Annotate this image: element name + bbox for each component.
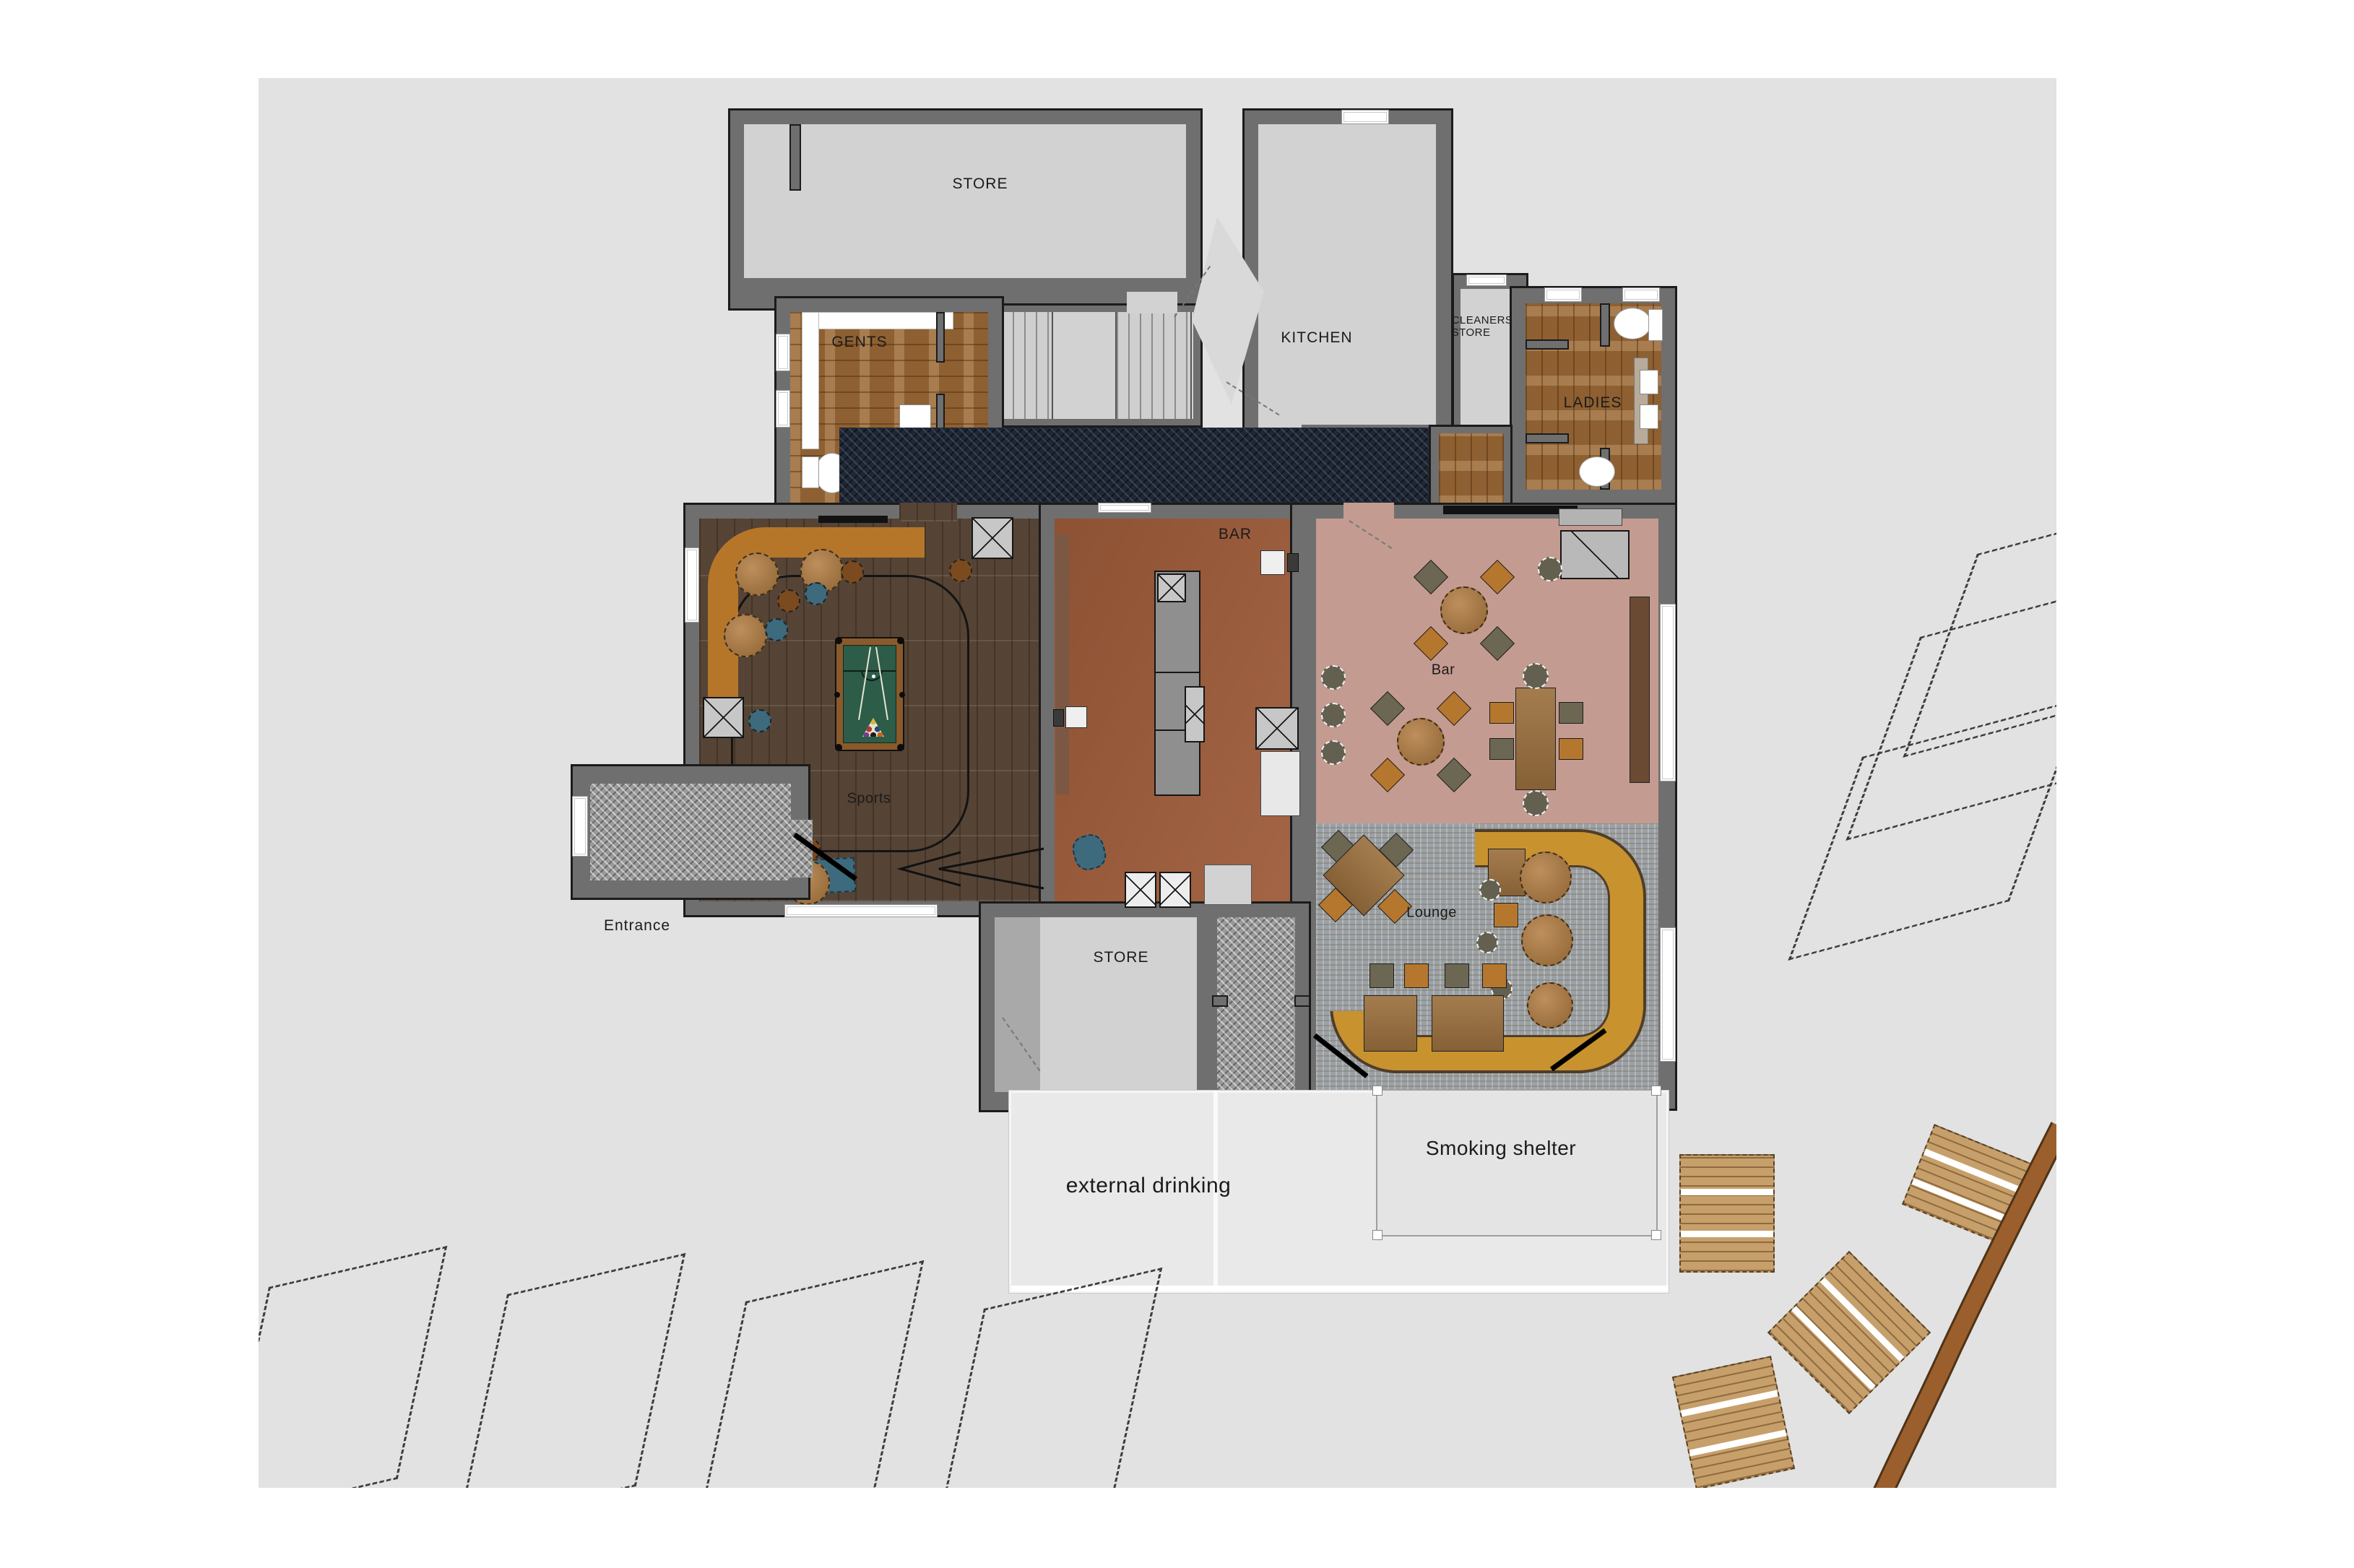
label-smoking-shelter: Smoking shelter (1426, 1137, 1576, 1160)
room-label-gents: GENTS (831, 334, 887, 351)
label-external-drinking: external drinking (1066, 1174, 1232, 1198)
road-overlay (259, 78, 2056, 1488)
room-label-store-top: STORE (953, 176, 1008, 193)
floor-plan-sheet: STORE KITCHEN CLEANERS STORE GENTS LADIE… (0, 0, 2354, 1568)
road-path (1853, 1127, 2056, 1488)
room-label-lounge: Lounge (1406, 905, 1457, 922)
room-label-bar-room: Bar (1432, 662, 1455, 679)
room-label-bar-servery: BAR (1219, 526, 1252, 543)
room-label-store-bottom: STORE (1094, 949, 1149, 966)
chevron-mark (901, 852, 961, 885)
room-label-cleaners-store: CLEANERS STORE (1452, 314, 1513, 339)
room-label-sports: Sports (847, 791, 891, 807)
site-area: STORE KITCHEN CLEANERS STORE GENTS LADIE… (259, 78, 2056, 1488)
room-label-kitchen: KITCHEN (1281, 329, 1352, 347)
room-label-ladies: LADIES (1564, 394, 1622, 412)
room-label-entrance: Entrance (604, 917, 670, 935)
